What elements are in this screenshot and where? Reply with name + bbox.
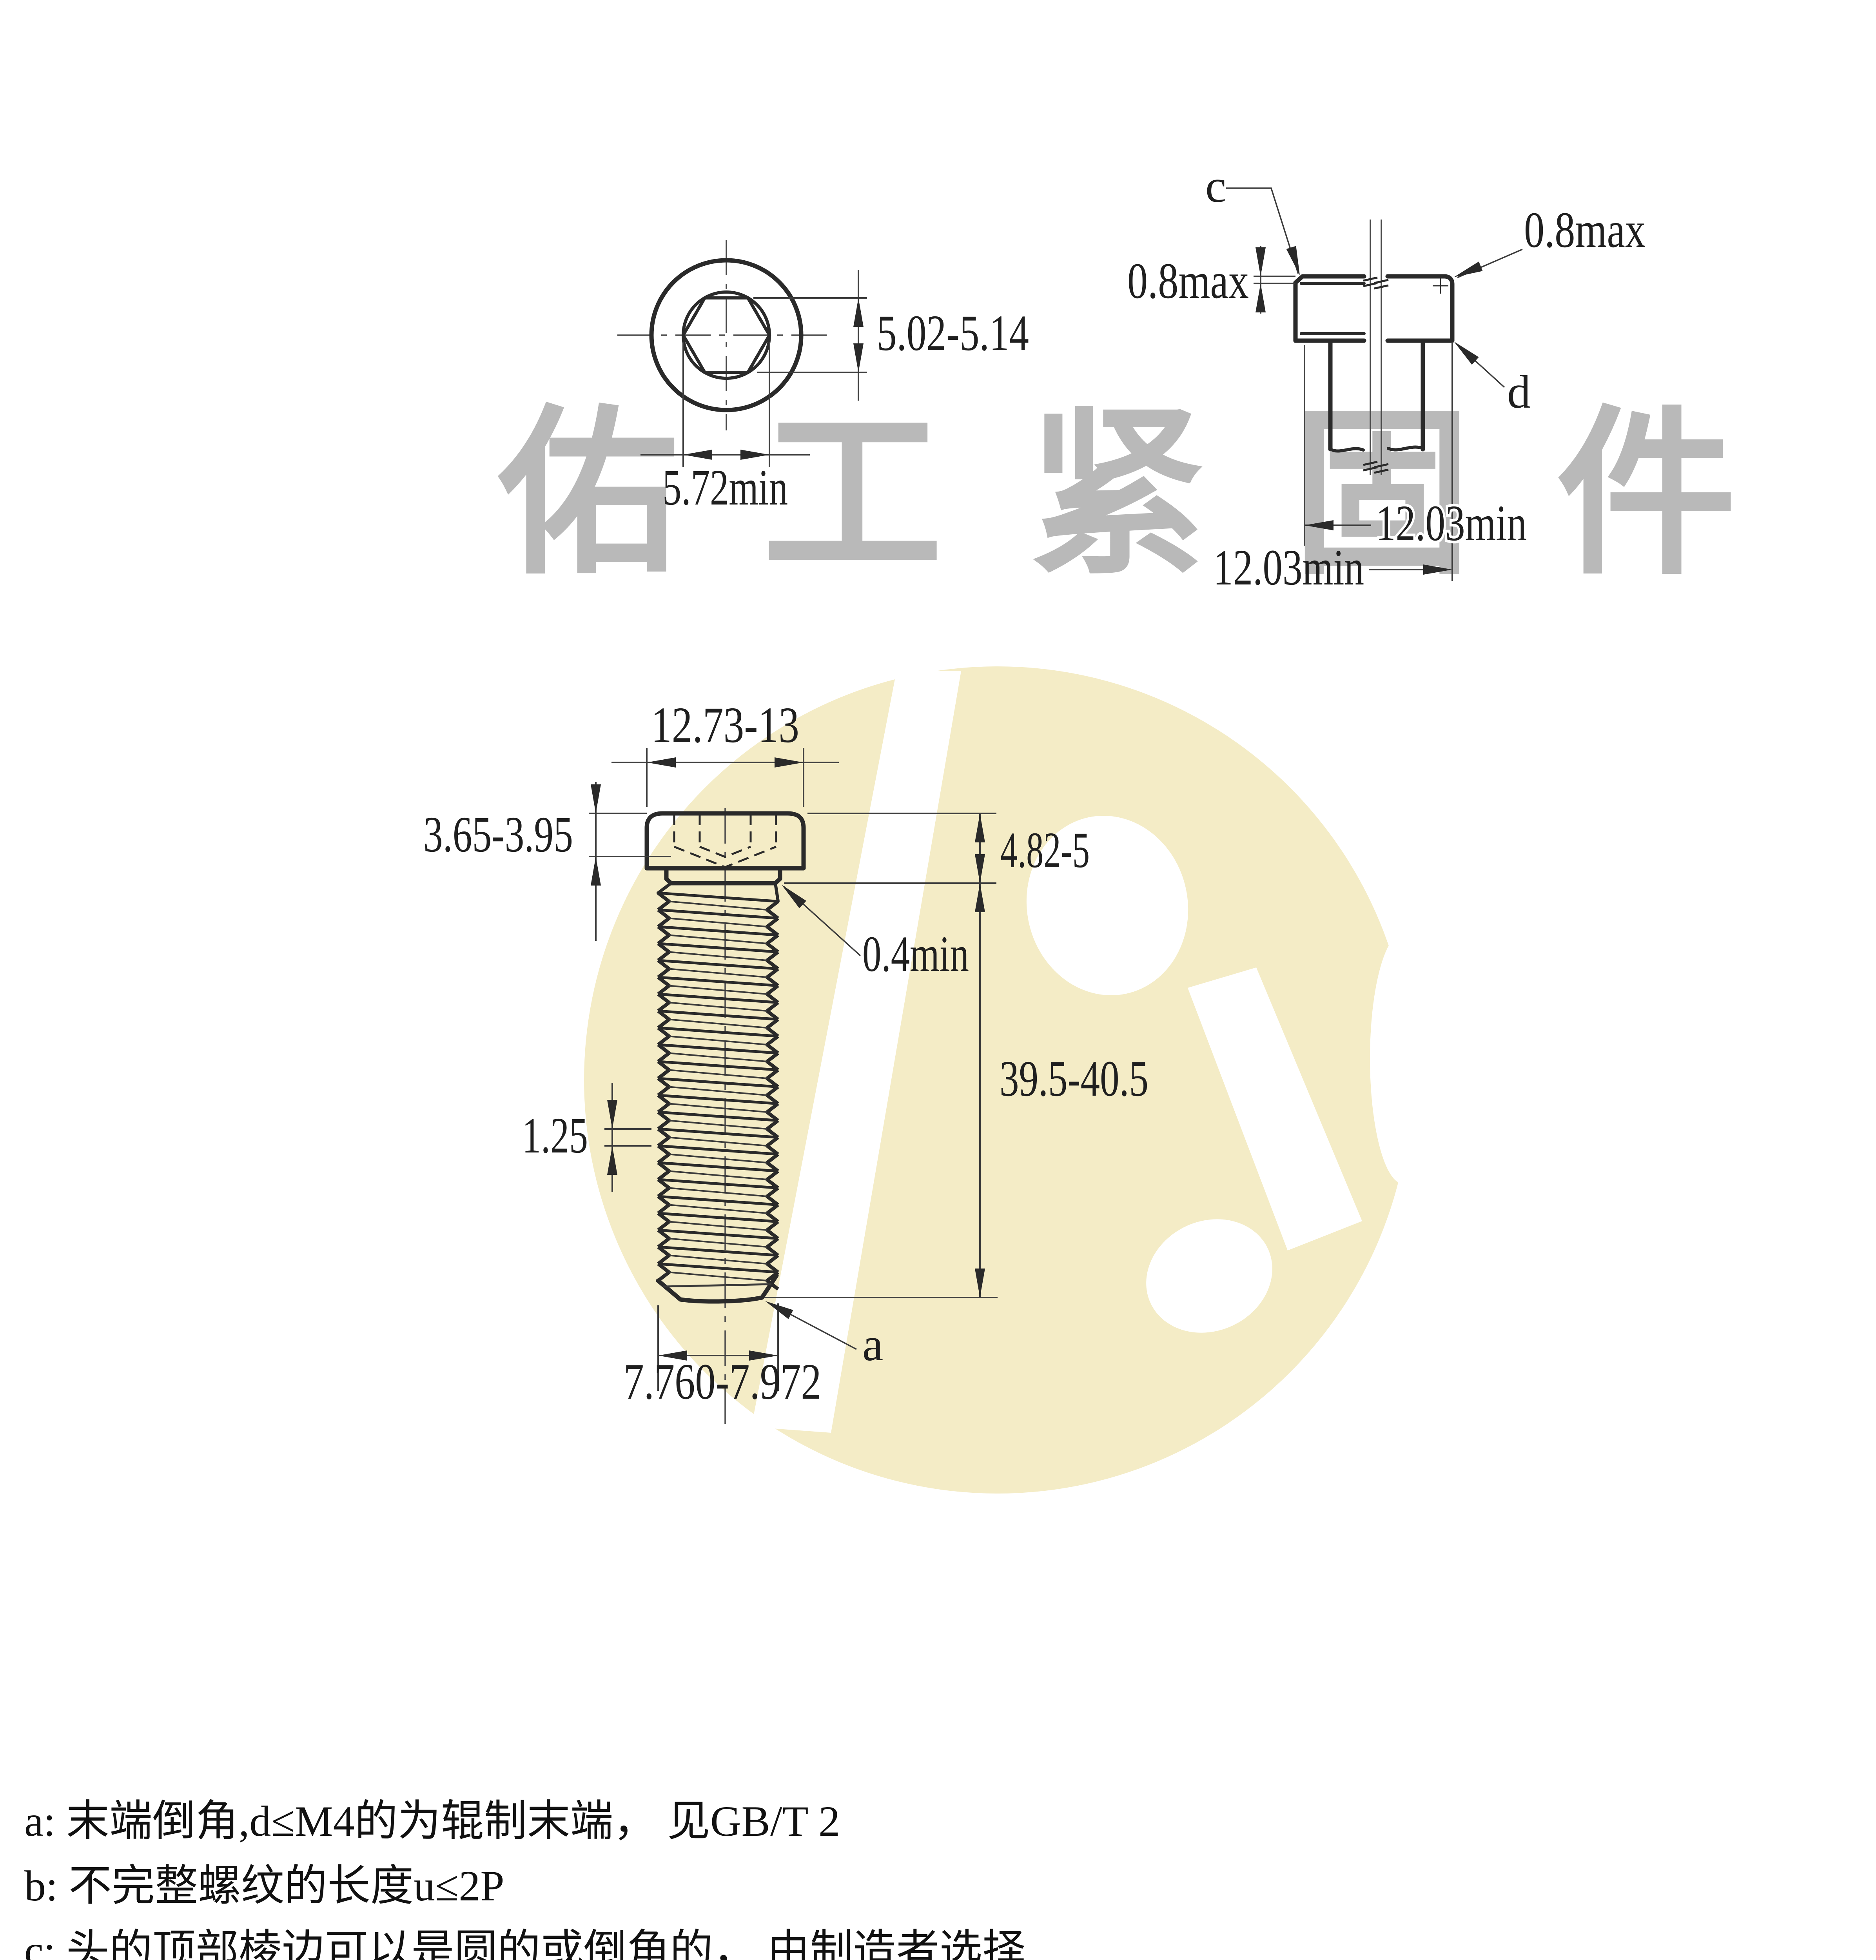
dim-head-diameter: 12.73-13	[651, 697, 799, 753]
label-d: d	[1507, 366, 1531, 418]
dim-underhead-fillet: 0.4min	[862, 926, 969, 982]
arrowhead	[853, 298, 864, 327]
arrowhead	[1450, 338, 1479, 365]
notes: a: 末端倒角,d≤M4的为辊制末端， 见GB/T 2 b: 不完整螺纹的长度u…	[24, 1797, 1025, 1960]
dim-bearing-upper: 12.03min	[1376, 495, 1527, 552]
dim-socket-across-corners: 5.72min	[662, 459, 788, 516]
arrowhead	[1256, 283, 1266, 312]
head-outline-left	[1295, 276, 1364, 341]
logo-notch-cutout	[1370, 933, 1437, 1184]
technical-drawing-canvas: 佑工紧固件 5.02-5.14 5.72min	[0, 0, 1876, 1960]
arrowhead	[591, 784, 601, 813]
note-line-b: b: 不完整螺纹的长度u≤2P	[24, 1862, 504, 1910]
arrowhead	[647, 757, 676, 768]
dim-head-height: 4.82-5	[1000, 822, 1090, 878]
arrowhead	[591, 857, 601, 886]
arrowhead	[1256, 247, 1266, 276]
dim-left-chamfer: 0.8max	[1127, 253, 1249, 309]
arrowhead	[853, 343, 864, 372]
dim-socket-depth: 3.65-3.95	[423, 806, 573, 863]
note-line-c: c: 头的顶部棱边可以是圆的或倒角的， 由制造者选择	[24, 1927, 1025, 1960]
label-a: a	[862, 1318, 883, 1370]
dim-thread-diameter: 7.760-7.972	[624, 1354, 822, 1410]
label-c: c	[1205, 160, 1226, 212]
arrowhead	[1286, 246, 1305, 276]
dim-pitch: 1.25	[522, 1107, 588, 1164]
arrowhead	[1452, 261, 1482, 282]
dim-socket-across-flats: 5.02-5.14	[877, 305, 1029, 361]
dim-top-chamfer: 0.8max	[1524, 202, 1646, 258]
note-line-a: a: 末端倒角,d≤M4的为辊制末端， 见GB/T 2	[24, 1797, 840, 1845]
dim-length: 39.5-40.5	[1000, 1051, 1148, 1107]
dim-bearing-lower: 12.03min	[1213, 539, 1364, 596]
